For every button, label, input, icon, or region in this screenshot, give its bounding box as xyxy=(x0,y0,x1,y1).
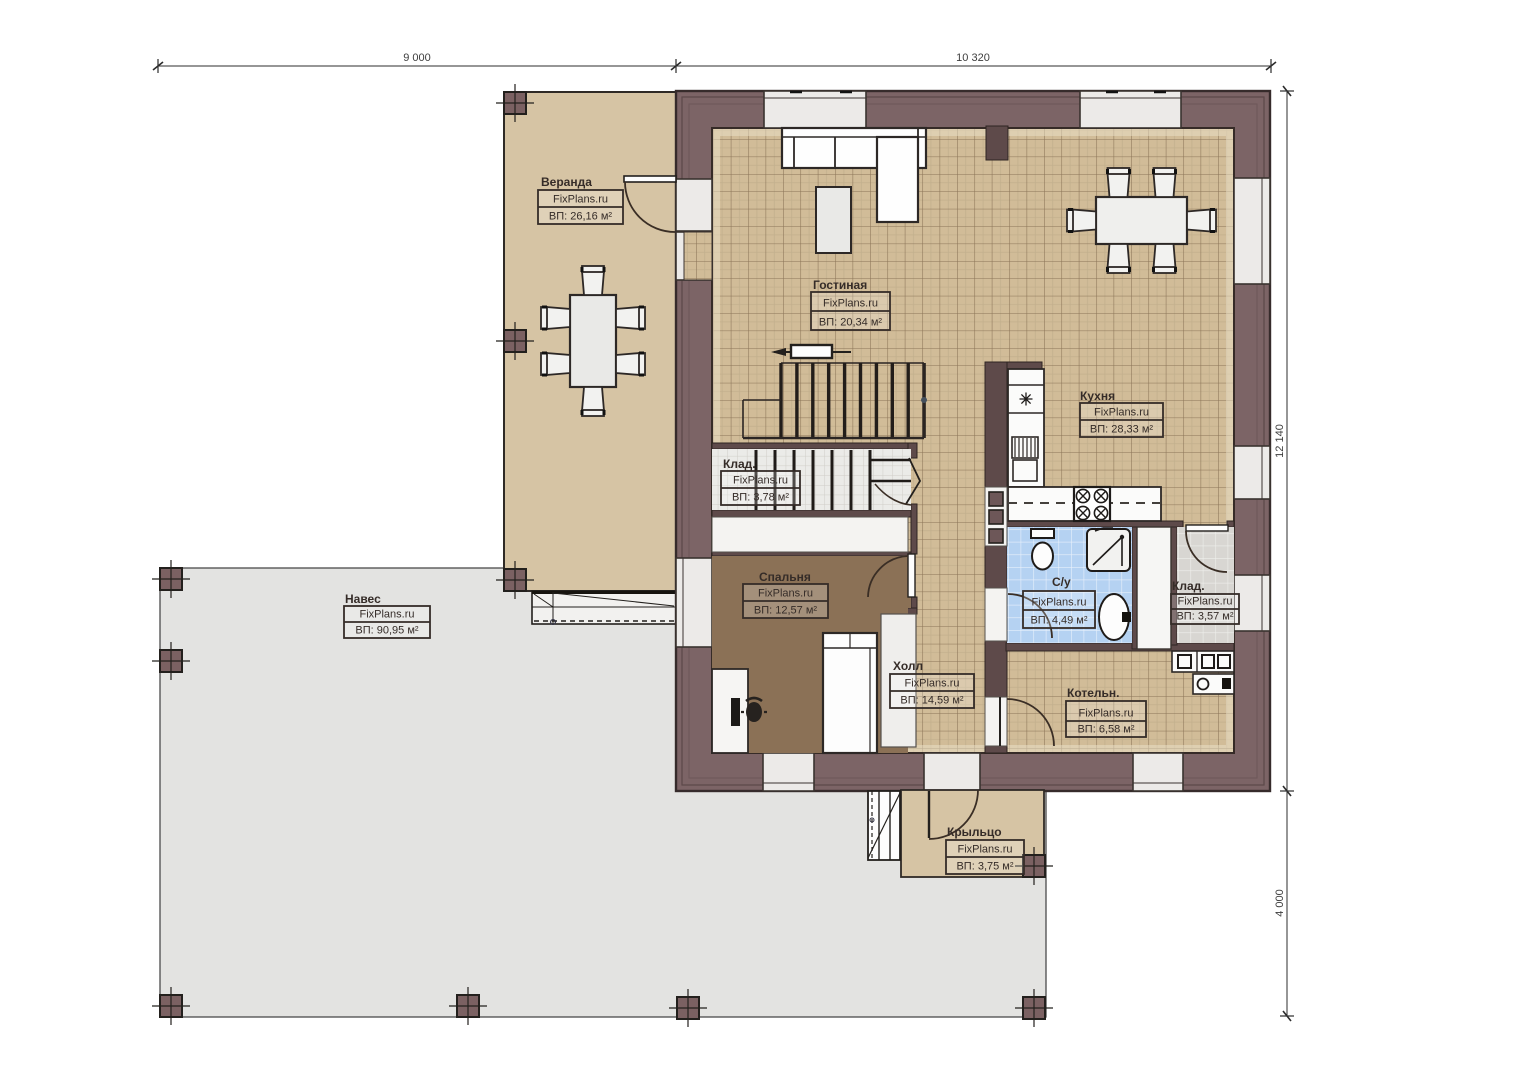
svg-text:FixPlans.ru: FixPlans.ru xyxy=(904,678,959,690)
svg-text:ВП: 12,57 м²: ВП: 12,57 м² xyxy=(754,605,818,617)
svg-text:4 000: 4 000 xyxy=(1274,889,1286,917)
svg-text:ВП: 26,16 м²: ВП: 26,16 м² xyxy=(549,211,613,223)
svg-text:FixPlans.ru: FixPlans.ru xyxy=(359,609,414,621)
svg-text:Спальня: Спальня xyxy=(759,570,811,584)
svg-text:Холл: Холл xyxy=(893,659,923,673)
svg-text:FixPlans.ru: FixPlans.ru xyxy=(1177,596,1232,608)
svg-text:FixPlans.ru: FixPlans.ru xyxy=(553,194,608,206)
svg-text:ВП: 28,33 м²: ВП: 28,33 м² xyxy=(1090,424,1154,436)
svg-text:Клад.: Клад. xyxy=(1172,579,1205,593)
svg-text:ВП: 3,78 м²: ВП: 3,78 м² xyxy=(732,492,789,504)
svg-text:FixPlans.ru: FixPlans.ru xyxy=(1094,407,1149,419)
svg-text:Кухня: Кухня xyxy=(1080,389,1115,403)
svg-text:Котельн.: Котельн. xyxy=(1067,686,1120,700)
svg-text:С/у: С/у xyxy=(1052,575,1071,589)
svg-text:ВП: 3,75 м²: ВП: 3,75 м² xyxy=(956,861,1013,873)
svg-text:ВП: 3,57 м²: ВП: 3,57 м² xyxy=(1176,611,1233,623)
svg-text:Веранда: Веранда xyxy=(541,175,592,189)
svg-text:Крыльцо: Крыльцо xyxy=(947,825,1002,839)
svg-text:Навес: Навес xyxy=(345,592,381,606)
svg-text:ВП: 90,95 м²: ВП: 90,95 м² xyxy=(355,625,419,637)
svg-text:FixPlans.ru: FixPlans.ru xyxy=(1031,597,1086,609)
svg-text:ВП: 20,34 м²: ВП: 20,34 м² xyxy=(819,317,883,329)
svg-text:10 320: 10 320 xyxy=(956,52,990,64)
svg-text:12 140: 12 140 xyxy=(1274,424,1286,458)
svg-text:ВП: 14,59 м²: ВП: 14,59 м² xyxy=(900,695,964,707)
svg-text:ВП: 4,49 м²: ВП: 4,49 м² xyxy=(1030,615,1087,627)
svg-text:FixPlans.ru: FixPlans.ru xyxy=(758,588,813,600)
svg-text:Гостиная: Гостиная xyxy=(813,278,867,292)
svg-text:FixPlans.ru: FixPlans.ru xyxy=(823,298,878,310)
svg-text:FixPlans.ru: FixPlans.ru xyxy=(957,844,1012,856)
svg-text:FixPlans.ru: FixPlans.ru xyxy=(1078,708,1133,720)
svg-text:FixPlans.ru: FixPlans.ru xyxy=(733,475,788,487)
svg-text:ВП: 6,58 м²: ВП: 6,58 м² xyxy=(1077,724,1134,736)
svg-text:9 000: 9 000 xyxy=(403,52,431,64)
svg-text:Клад.: Клад. xyxy=(723,457,756,471)
